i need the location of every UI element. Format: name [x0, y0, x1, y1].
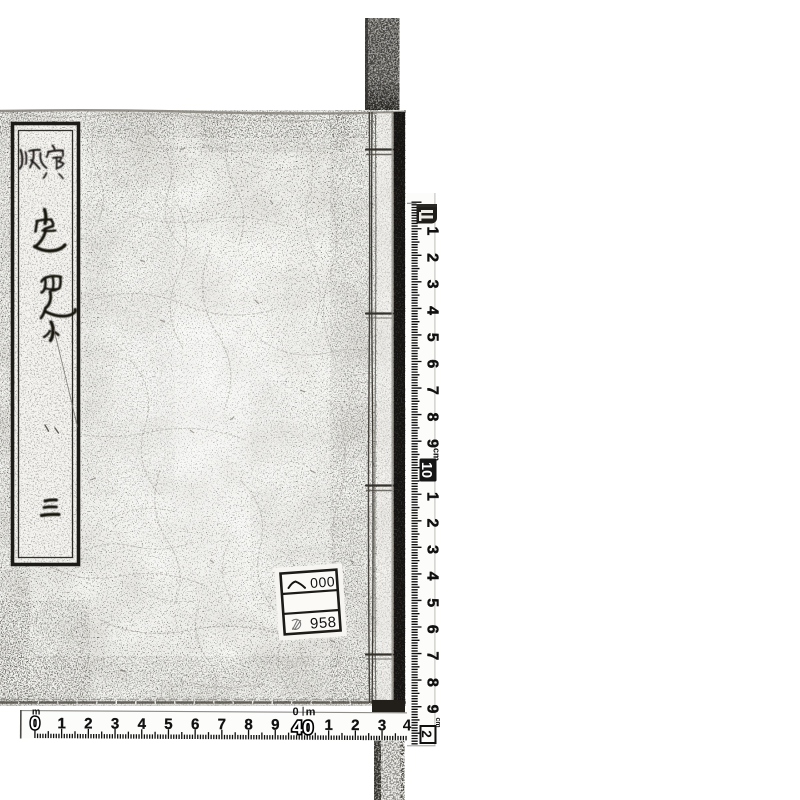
- svg-text:2: 2: [84, 715, 92, 732]
- svg-text:5: 5: [424, 598, 441, 607]
- svg-text:7: 7: [424, 651, 441, 660]
- svg-text:cm: cm: [434, 717, 441, 727]
- svg-text:m: m: [306, 706, 316, 718]
- svg-text:1: 1: [424, 492, 441, 501]
- svg-text:9: 9: [271, 717, 279, 734]
- svg-text:9: 9: [424, 439, 441, 448]
- svg-text:2: 2: [419, 730, 434, 738]
- svg-text:8: 8: [424, 678, 441, 687]
- svg-text:5: 5: [164, 716, 172, 733]
- svg-text:40: 40: [292, 717, 314, 738]
- svg-text:2: 2: [351, 717, 359, 734]
- svg-text:1: 1: [57, 715, 65, 732]
- svg-text:10: 10: [418, 462, 434, 478]
- svg-text:1: 1: [424, 227, 441, 236]
- svg-text:3: 3: [424, 280, 441, 289]
- svg-text:8: 8: [424, 412, 441, 421]
- svg-text:8: 8: [244, 716, 252, 733]
- svg-text:2: 2: [424, 253, 441, 262]
- svg-text:1: 1: [324, 717, 332, 734]
- svg-text:7: 7: [218, 716, 226, 733]
- svg-text:000: 000: [310, 573, 336, 591]
- svg-text:4: 4: [424, 306, 441, 315]
- svg-text:m: m: [32, 707, 41, 718]
- svg-text:5: 5: [424, 333, 441, 342]
- svg-text:7: 7: [424, 386, 441, 395]
- svg-text:6: 6: [424, 359, 441, 368]
- svg-text:3: 3: [378, 717, 386, 734]
- svg-text:9: 9: [424, 704, 441, 713]
- svg-text:958: 958: [309, 614, 337, 633]
- svg-text:4: 4: [424, 572, 441, 581]
- svg-text:3: 3: [111, 716, 119, 733]
- svg-text:4: 4: [138, 716, 147, 733]
- svg-text:6: 6: [191, 716, 199, 733]
- svg-text:4: 4: [403, 718, 412, 735]
- svg-text:cm: cm: [432, 448, 442, 461]
- svg-text:0: 0: [292, 706, 298, 718]
- svg-text:3: 3: [424, 545, 441, 554]
- svg-text:6: 6: [424, 625, 441, 634]
- svg-text:2: 2: [424, 519, 441, 528]
